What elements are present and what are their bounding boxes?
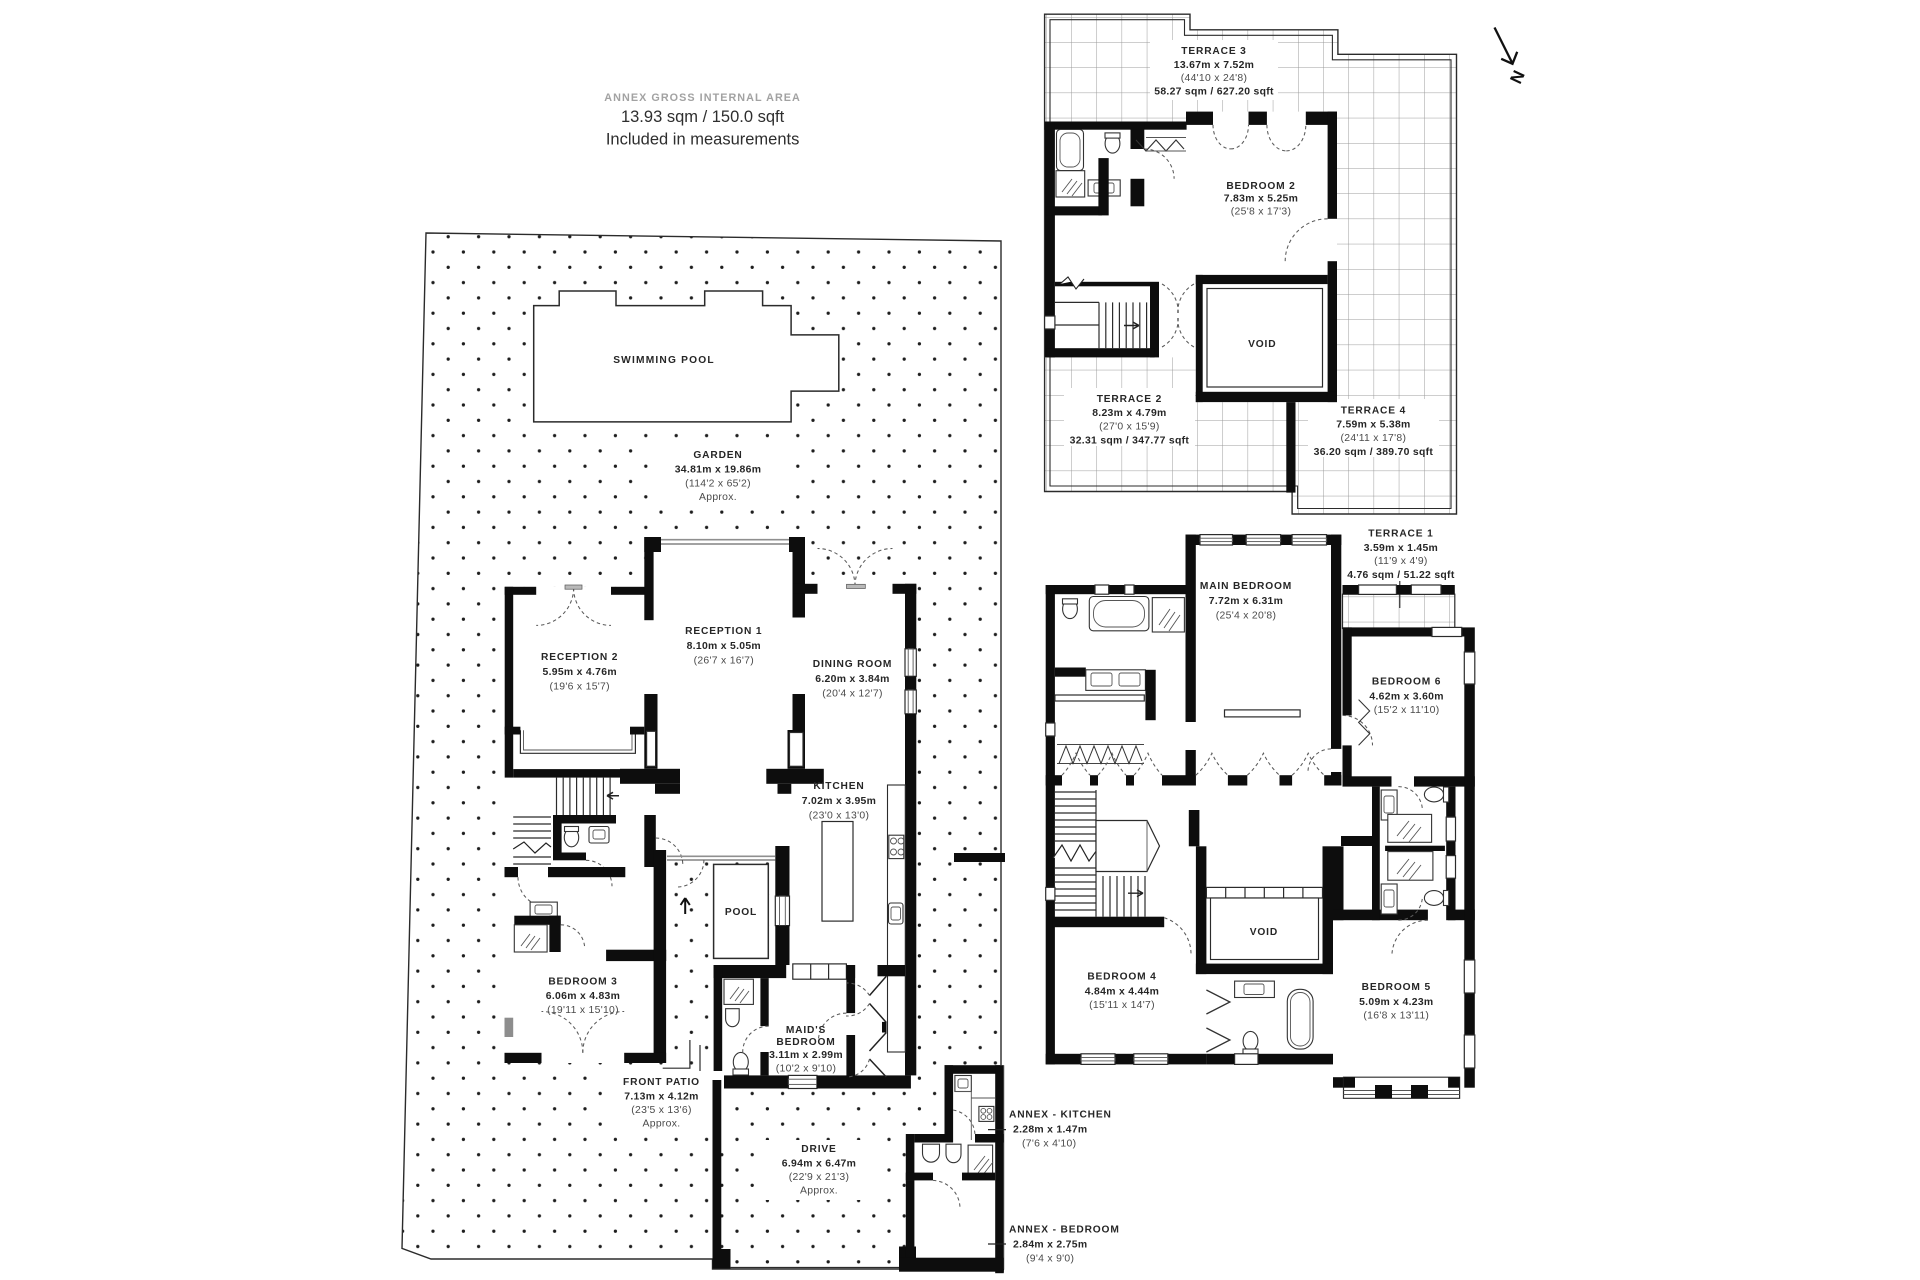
svg-text:TERRACE 1: TERRACE 1 xyxy=(1368,529,1433,540)
svg-text:(11'9 x 4'9): (11'9 x 4'9) xyxy=(1374,556,1428,567)
svg-text:32.31 sqm / 347.77 sqft: 32.31 sqm / 347.77 sqft xyxy=(1070,436,1190,447)
svg-text:RECEPTION 1: RECEPTION 1 xyxy=(685,626,762,637)
svg-text:MAID'S: MAID'S xyxy=(786,1025,826,1036)
svg-text:13.67m x 7.52m: 13.67m x 7.52m xyxy=(1174,60,1254,71)
svg-text:POOL: POOL xyxy=(725,907,757,918)
svg-text:(114'2 x 65'2): (114'2 x 65'2) xyxy=(685,479,751,490)
svg-text:13.93 sqm / 150.0 sqft: 13.93 sqm / 150.0 sqft xyxy=(621,108,785,126)
svg-text:(16'8 x 13'11): (16'8 x 13'11) xyxy=(1363,1011,1429,1022)
svg-text:ANNEX GROSS INTERNAL AREA: ANNEX GROSS INTERNAL AREA xyxy=(604,92,801,104)
svg-text:34.81m x 19.86m: 34.81m x 19.86m xyxy=(675,465,762,476)
svg-text:DINING ROOM: DINING ROOM xyxy=(813,659,893,670)
svg-text:5.95m x 4.76m: 5.95m x 4.76m xyxy=(543,667,617,678)
svg-text:4.76 sqm / 51.22 sqft: 4.76 sqm / 51.22 sqft xyxy=(1347,570,1455,581)
svg-text:7.13m x 4.12m: 7.13m x 4.12m xyxy=(624,1092,698,1103)
svg-text:BEDROOM 5: BEDROOM 5 xyxy=(1362,982,1431,993)
svg-text:BEDROOM 6: BEDROOM 6 xyxy=(1372,677,1441,688)
svg-text:5.09m x 4.23m: 5.09m x 4.23m xyxy=(1359,997,1433,1008)
svg-text:BEDROOM: BEDROOM xyxy=(776,1037,835,1048)
svg-text:(19'11 x 15'10): (19'11 x 15'10) xyxy=(547,1005,619,1016)
svg-text:3.59m x 1.45m: 3.59m x 1.45m xyxy=(1364,543,1438,554)
svg-text:FRONT PATIO: FRONT PATIO xyxy=(623,1077,700,1088)
svg-text:TERRACE 2: TERRACE 2 xyxy=(1097,394,1162,405)
svg-text:(23'0 x 13'0): (23'0 x 13'0) xyxy=(809,811,869,822)
svg-text:(25'8 x 17'3): (25'8 x 17'3) xyxy=(1231,207,1291,218)
svg-text:58.27 sqm / 627.20 sqft: 58.27 sqm / 627.20 sqft xyxy=(1154,87,1274,98)
svg-text:7.02m x 3.95m: 7.02m x 3.95m xyxy=(802,796,876,807)
svg-text:3.11m x 2.99m: 3.11m x 2.99m xyxy=(769,1050,843,1061)
svg-text:2.28m x 1.47m: 2.28m x 1.47m xyxy=(1013,1125,1087,1136)
svg-text:7.83m x 5.25m: 7.83m x 5.25m xyxy=(1224,194,1298,205)
svg-text:7.72m x 6.31m: 7.72m x 6.31m xyxy=(1209,596,1283,607)
svg-text:(20'4 x 12'7): (20'4 x 12'7) xyxy=(822,689,882,700)
svg-text:(26'7 x 16'7): (26'7 x 16'7) xyxy=(694,656,754,667)
svg-text:(15'2 x 11'10): (15'2 x 11'10) xyxy=(1374,705,1440,716)
svg-text:Approx.: Approx. xyxy=(800,1186,838,1197)
svg-text:VOID: VOID xyxy=(1248,339,1276,350)
svg-text:(22'9 x 21'3): (22'9 x 21'3) xyxy=(789,1172,849,1183)
svg-text:2.84m x 2.75m: 2.84m x 2.75m xyxy=(1013,1240,1087,1251)
svg-text:Approx.: Approx. xyxy=(699,492,737,503)
svg-text:(25'4 x 20'8): (25'4 x 20'8) xyxy=(1216,611,1276,622)
svg-text:GARDEN: GARDEN xyxy=(693,450,742,461)
svg-text:VOID: VOID xyxy=(1250,927,1278,938)
svg-text:SWIMMING POOL: SWIMMING POOL xyxy=(613,355,715,366)
svg-text:(10'2 x 9'10): (10'2 x 9'10) xyxy=(776,1064,836,1075)
svg-text:BEDROOM 4: BEDROOM 4 xyxy=(1087,972,1156,983)
svg-text:Included in measurements: Included in measurements xyxy=(606,131,800,149)
svg-text:4.84m x 4.44m: 4.84m x 4.44m xyxy=(1085,987,1159,998)
svg-text:6.94m x 6.47m: 6.94m x 6.47m xyxy=(782,1159,856,1170)
svg-text:ANNEX - BEDROOM: ANNEX - BEDROOM xyxy=(1009,1225,1120,1236)
svg-text:(23'5 x 13'6): (23'5 x 13'6) xyxy=(631,1105,691,1116)
svg-text:36.20 sqm / 389.70 sqft: 36.20 sqm / 389.70 sqft xyxy=(1314,447,1434,458)
svg-text:8.23m x 4.79m: 8.23m x 4.79m xyxy=(1092,408,1166,419)
svg-text:6.20m x 3.84m: 6.20m x 3.84m xyxy=(815,674,889,685)
svg-text:TERRACE 3: TERRACE 3 xyxy=(1181,46,1246,57)
svg-text:MAIN BEDROOM: MAIN BEDROOM xyxy=(1200,581,1292,592)
svg-text:KITCHEN: KITCHEN xyxy=(813,781,864,792)
svg-text:(27'0 x 15'9): (27'0 x 15'9) xyxy=(1099,422,1159,433)
svg-text:ANNEX - KITCHEN: ANNEX - KITCHEN xyxy=(1009,1110,1112,1121)
svg-text:8.10m x 5.05m: 8.10m x 5.05m xyxy=(687,641,761,652)
svg-text:(44'10 x 24'8): (44'10 x 24'8) xyxy=(1181,73,1248,84)
svg-text:7.59m x 5.38m: 7.59m x 5.38m xyxy=(1336,420,1410,431)
svg-text:BEDROOM 3: BEDROOM 3 xyxy=(548,977,617,988)
svg-text:(24'11 x 17'8): (24'11 x 17'8) xyxy=(1341,433,1407,444)
svg-text:4.62m x 3.60m: 4.62m x 3.60m xyxy=(1369,692,1443,703)
svg-text:6.06m x 4.83m: 6.06m x 4.83m xyxy=(546,991,620,1002)
svg-text:DRIVE: DRIVE xyxy=(801,1144,836,1155)
svg-text:(19'6 x 15'7): (19'6 x 15'7) xyxy=(549,682,609,693)
svg-text:TERRACE 4: TERRACE 4 xyxy=(1341,406,1406,417)
svg-text:(7'6 x 4'10): (7'6 x 4'10) xyxy=(1022,1139,1076,1150)
svg-text:(15'11 x 14'7): (15'11 x 14'7) xyxy=(1089,1000,1155,1011)
svg-text:BEDROOM 2: BEDROOM 2 xyxy=(1226,181,1295,192)
svg-text:Approx.: Approx. xyxy=(643,1119,681,1130)
svg-text:RECEPTION 2: RECEPTION 2 xyxy=(541,652,618,663)
svg-text:(9'4 x 9'0): (9'4 x 9'0) xyxy=(1026,1254,1074,1265)
